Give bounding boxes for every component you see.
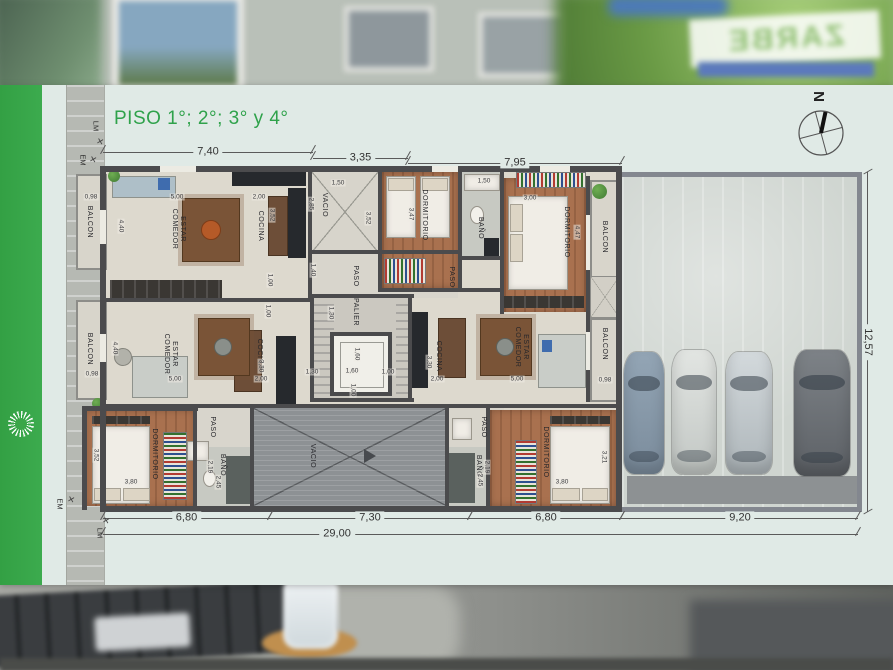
dim-value: 6,80 — [531, 511, 560, 523]
rlabel: PALIER — [351, 298, 359, 326]
idim: 3,30 — [426, 355, 433, 370]
idim: 2,00 — [430, 376, 445, 383]
dim-line-bottom: 9,20 — [622, 518, 858, 519]
dim-value: 9,20 — [725, 511, 754, 523]
rlabel: DORMITORIO — [420, 189, 428, 240]
idim: 2,19 — [484, 460, 491, 475]
dim-value: 7,40 — [193, 145, 222, 157]
rlabel: DORMITORIO — [150, 428, 158, 479]
rlabel: PASO — [351, 265, 359, 286]
rlabel: BALCON — [85, 333, 93, 365]
idim: 3,47 — [408, 207, 415, 222]
rlabel: DORMITORIO — [541, 426, 549, 477]
rlabel: BALCON — [600, 221, 608, 253]
dim-line-bottom: 6,80 — [103, 518, 270, 519]
bmark: EM — [56, 498, 65, 509]
idim: 4,47 — [574, 225, 581, 240]
dim-line-top: 7,95 — [408, 163, 622, 164]
idim: 3,80 — [124, 479, 139, 486]
rlabel: BAÑO — [218, 454, 226, 476]
idim: 1,00 — [265, 304, 272, 319]
idim: 3,52 — [365, 211, 372, 226]
idim: 1,00 — [267, 273, 274, 288]
idim: 2,45 — [477, 473, 484, 488]
rlabel: ESTAR COMEDOR — [513, 327, 529, 368]
rlabel: DORMITORIO — [562, 206, 570, 257]
idim: 0,98 — [598, 377, 613, 384]
survey-ticks-layer: ✕✕✕✕ — [0, 0, 893, 670]
dim-value: 12,57 — [862, 324, 874, 360]
north-label: N — [810, 91, 827, 102]
rlabel: PASO — [208, 416, 216, 437]
dim-line-bottom: 7,30 — [270, 518, 470, 519]
idim: 2,85 — [308, 197, 315, 212]
rlabel: COCINA — [256, 211, 264, 242]
idim: 1,40 — [310, 263, 317, 278]
rlabel: PASO — [447, 266, 455, 287]
idim: 5,00 — [168, 376, 183, 383]
dim-value: 7,95 — [500, 156, 529, 168]
dim-line-top: 3,35 — [313, 158, 408, 159]
idim: 0,98 — [84, 194, 99, 201]
rlabel: BALCON — [85, 206, 93, 238]
idim: 4,40 — [118, 219, 125, 234]
idim: 1,60 — [345, 368, 360, 375]
dim-value: 3,35 — [346, 151, 375, 163]
idim: 3,52 — [269, 208, 276, 223]
dim-line-total: 29,00 — [103, 534, 858, 535]
idim: 5,00 — [170, 194, 185, 201]
bmark: LM — [92, 121, 101, 131]
idim: 1,60 — [354, 347, 361, 362]
btick: ✕ — [66, 494, 76, 507]
dim-value: 7,30 — [355, 511, 384, 523]
idim: 4,40 — [112, 341, 119, 356]
rlabel: BALCON — [600, 328, 608, 360]
rlabel: COCINA — [434, 341, 442, 372]
dim-line-bottom: 6,80 — [470, 518, 622, 519]
idim: 3,00 — [523, 195, 538, 202]
btick: ✕ — [101, 515, 111, 528]
rlabel: PASO — [479, 416, 487, 437]
idim: 3,52 — [93, 448, 100, 463]
idim: 2,19 — [207, 460, 214, 475]
screenshot-root: ZARBE PISO 1°; 2°; 3° y 4° — [0, 0, 893, 670]
bmark: LM — [96, 528, 105, 538]
dim-value: 29,00 — [319, 527, 355, 539]
rlabel: ESTAR COMEDOR — [162, 334, 178, 375]
idim: 2,45 — [215, 475, 222, 490]
btick: ✕ — [88, 154, 98, 167]
idim: 1,30 — [328, 306, 335, 321]
bmark: EM — [79, 154, 88, 165]
idim: 2,00 — [254, 376, 269, 383]
idim: 5,00 — [510, 376, 525, 383]
idim: 3,21 — [601, 450, 608, 465]
idim: 1,00 — [350, 383, 357, 398]
idim: 2,00 — [252, 194, 267, 201]
rlabel: ESTAR COMEDOR — [170, 209, 186, 250]
rlabel: VACIO — [320, 193, 328, 217]
idim: 3,80 — [555, 479, 570, 486]
dim-line-top: 7,40 — [103, 152, 313, 153]
rlabel: BAÑO — [476, 217, 484, 239]
idim: 1,50 — [477, 178, 492, 185]
idim: 1,50 — [331, 180, 346, 187]
idim: 3,30 — [258, 359, 265, 374]
idim: 1,30 — [305, 369, 320, 376]
idim: 0,98 — [85, 371, 100, 378]
rlabel: VACIO — [308, 444, 316, 468]
idim: 1,00 — [381, 369, 396, 376]
dim-value: 6,80 — [172, 511, 201, 523]
dim-line-right: 12,57 — [867, 172, 868, 512]
